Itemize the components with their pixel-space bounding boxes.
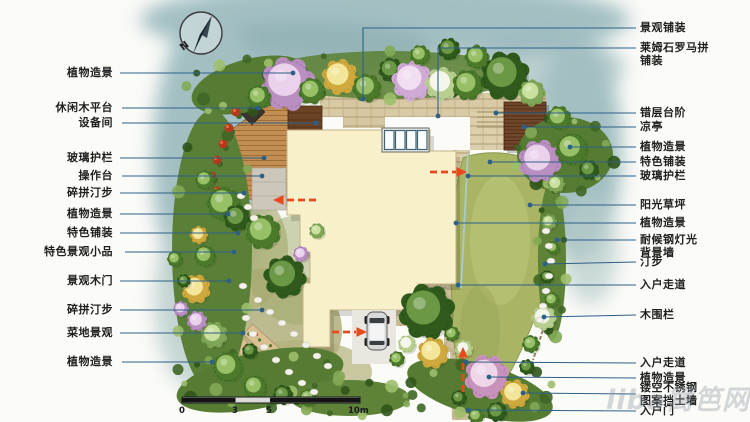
scale-tick-10m: 10m bbox=[348, 406, 369, 416]
scale-tick-0: 0 bbox=[179, 406, 185, 416]
car-top-view bbox=[365, 312, 390, 350]
window-bay bbox=[382, 128, 429, 152]
watermark: liba篱笆网 bbox=[606, 378, 750, 417]
work-counter bbox=[252, 168, 286, 210]
site-plan-illustration: N 0 3 5 10m bbox=[0, 0, 750, 422]
scale-tick-3: 3 bbox=[232, 406, 238, 416]
scale-tick-5: 5 bbox=[266, 406, 272, 416]
canvas: N 0 3 5 10m 植物造景休闲木平台设备间玻璃护栏操作台碎拼汀步植物造景特… bbox=[0, 0, 750, 422]
